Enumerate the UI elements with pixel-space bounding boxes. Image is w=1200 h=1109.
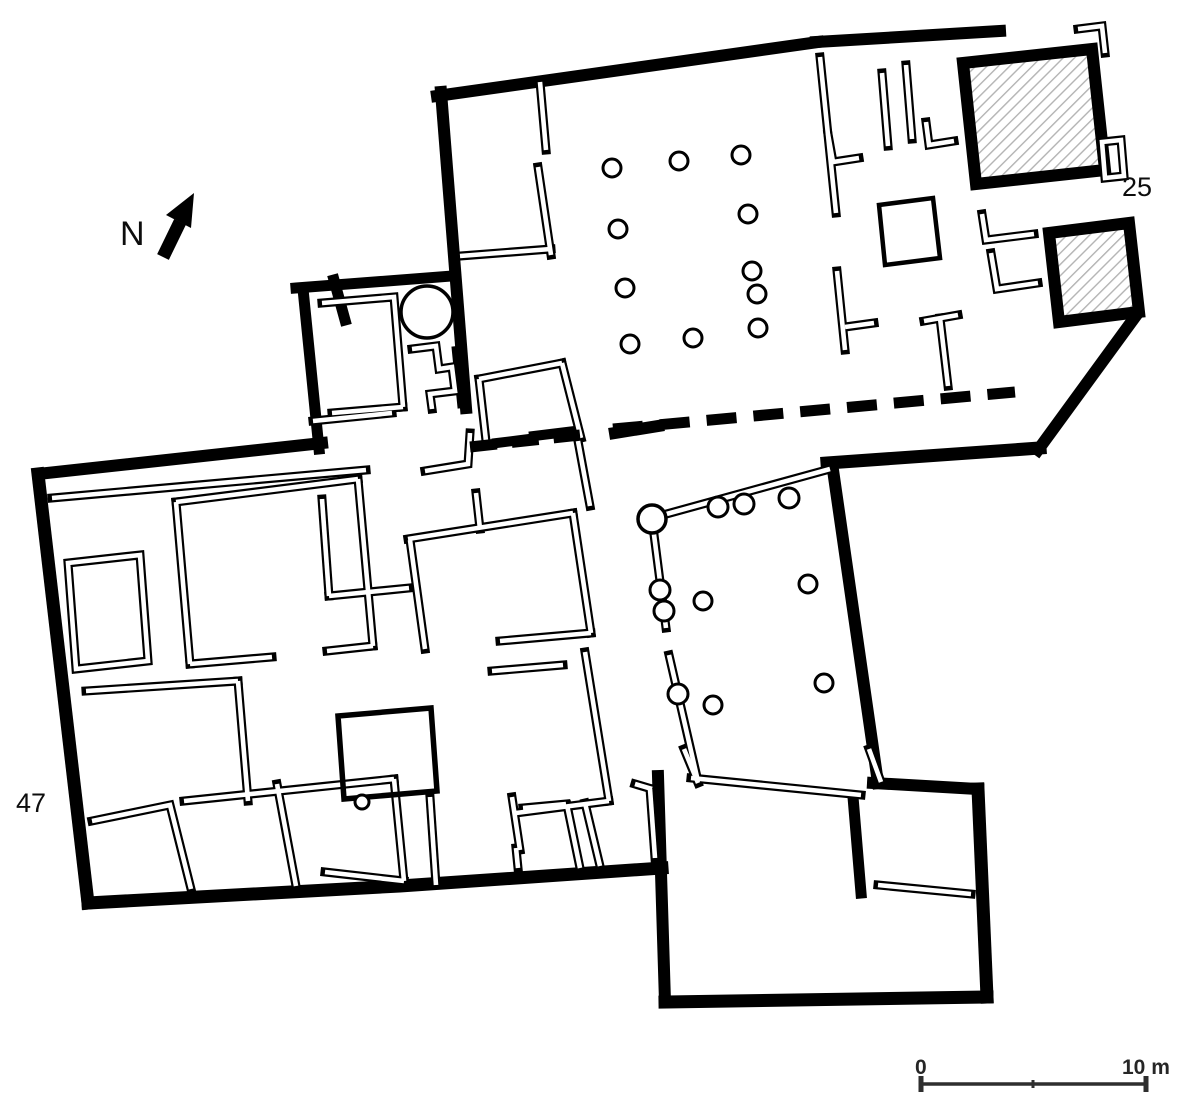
well-circle <box>401 286 453 338</box>
courtyard-columns-segment <box>704 696 722 714</box>
door-pivot-circle <box>355 795 369 809</box>
courtyard-columns-segment <box>734 494 754 514</box>
thin-walls-core-layer-segment <box>573 513 591 633</box>
thick-walls-layer-segment <box>38 474 88 903</box>
north-arrow-icon: N <box>120 193 194 257</box>
courtyard-columns-segment <box>779 488 799 508</box>
thick-walls-layer-segment <box>437 42 818 96</box>
scale-zero-label: 0 <box>915 1056 927 1079</box>
north-label: N <box>120 215 145 253</box>
courtyard-columns-segment <box>815 674 833 692</box>
hall-columns-segment <box>732 146 750 164</box>
thick-walls-layer-segment <box>816 31 1000 42</box>
thin-walls-core-layer-segment <box>585 652 609 801</box>
floor-plan: N 25 47 0 10 m <box>0 0 1200 1109</box>
floor-plan-page: N 25 47 0 10 m <box>0 0 1200 1109</box>
hall-columns-segment <box>609 220 627 238</box>
thin-walls-core-layer-segment <box>691 778 861 795</box>
hatched-room-2 <box>1053 229 1134 317</box>
hall-columns-segment <box>616 279 634 297</box>
courtyard-columns-segment <box>654 601 674 621</box>
hall-columns-segment <box>621 335 639 353</box>
thick-walls-layer-segment <box>853 797 861 893</box>
thick-walls-layer-segment <box>658 776 665 1002</box>
thick-walls-layer-segment <box>978 789 987 997</box>
thin-walls-core-layer-segment <box>410 540 425 649</box>
thick-walls-layer-segment <box>665 997 987 1002</box>
courtyard-columns-segment <box>650 580 670 600</box>
label-unit-25: 25 <box>1122 172 1152 202</box>
courtyard-columns-segment <box>638 505 666 533</box>
courtyard-columns-segment <box>708 497 728 517</box>
thin-walls-core-layer-segment <box>425 433 470 471</box>
hall-columns-segment <box>739 205 757 223</box>
thin-walls-layer-segment <box>68 555 148 669</box>
hall-columns-segment <box>743 262 761 280</box>
pedestal-square <box>879 198 940 265</box>
north-arrow-icon-segment <box>163 222 180 257</box>
thick-walls-layer-segment <box>1038 317 1135 450</box>
thin-walls-core-layer-segment <box>408 513 573 539</box>
thin-walls-core-layer-segment <box>277 784 296 886</box>
scale-max-label: 10 m <box>1122 1056 1170 1079</box>
thin-walls-layer-segment <box>412 346 455 409</box>
thin-walls-core-layer-segment <box>176 502 190 664</box>
hatched-room-1 <box>967 55 1099 178</box>
hall-columns-segment <box>670 152 688 170</box>
courtyard-columns-segment <box>668 684 688 704</box>
hall-columns <box>603 146 767 353</box>
courtyard-columns-segment <box>694 592 712 610</box>
thin-walls-core-layer-segment <box>585 803 600 866</box>
thin-walls-core-layer-segment <box>479 363 562 379</box>
hall-columns-segment <box>749 319 767 337</box>
dashed-wall-east <box>613 392 1015 429</box>
thin-walls-core-layer-segment <box>516 848 518 868</box>
thin-walls-layer-segment <box>322 297 403 407</box>
thick-walls-layer <box>38 31 1139 1002</box>
hall-columns-segment <box>603 159 621 177</box>
courtyard-columns-segment <box>799 575 817 593</box>
label-unit-47: 47 <box>16 788 46 818</box>
scale-bar: 0 10 m <box>915 1056 1170 1092</box>
thick-walls-layer-segment <box>873 783 978 789</box>
thin-walls-core-layer-segment <box>538 167 551 255</box>
thick-walls-layer-segment <box>38 443 322 474</box>
hall-columns-segment <box>748 285 766 303</box>
thick-walls-layer-segment <box>827 448 1040 463</box>
thin-walls-core-layer-segment <box>358 479 373 646</box>
courtyard-columns <box>638 488 833 714</box>
thick-walls-layer-segment <box>833 470 878 783</box>
thin-walls-core-layer-segment <box>68 555 148 669</box>
thin-walls-core-layer-segment <box>669 655 697 777</box>
hall-columns-segment <box>684 329 702 347</box>
